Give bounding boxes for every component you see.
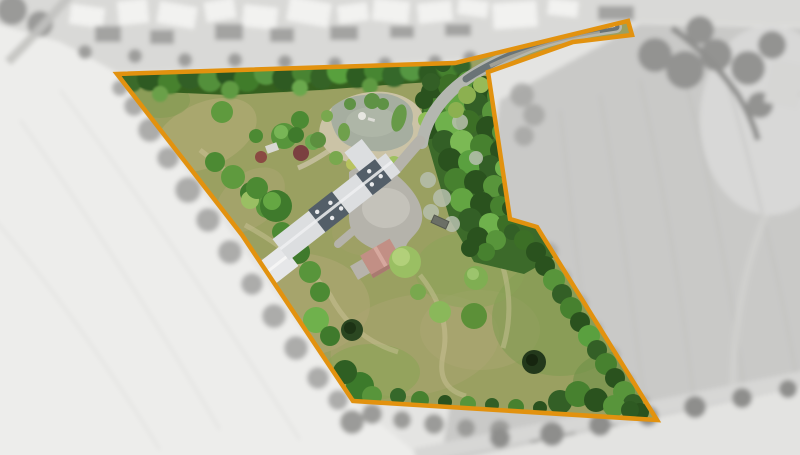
fountain bbox=[358, 112, 366, 120]
aerial-photo bbox=[0, 0, 800, 455]
